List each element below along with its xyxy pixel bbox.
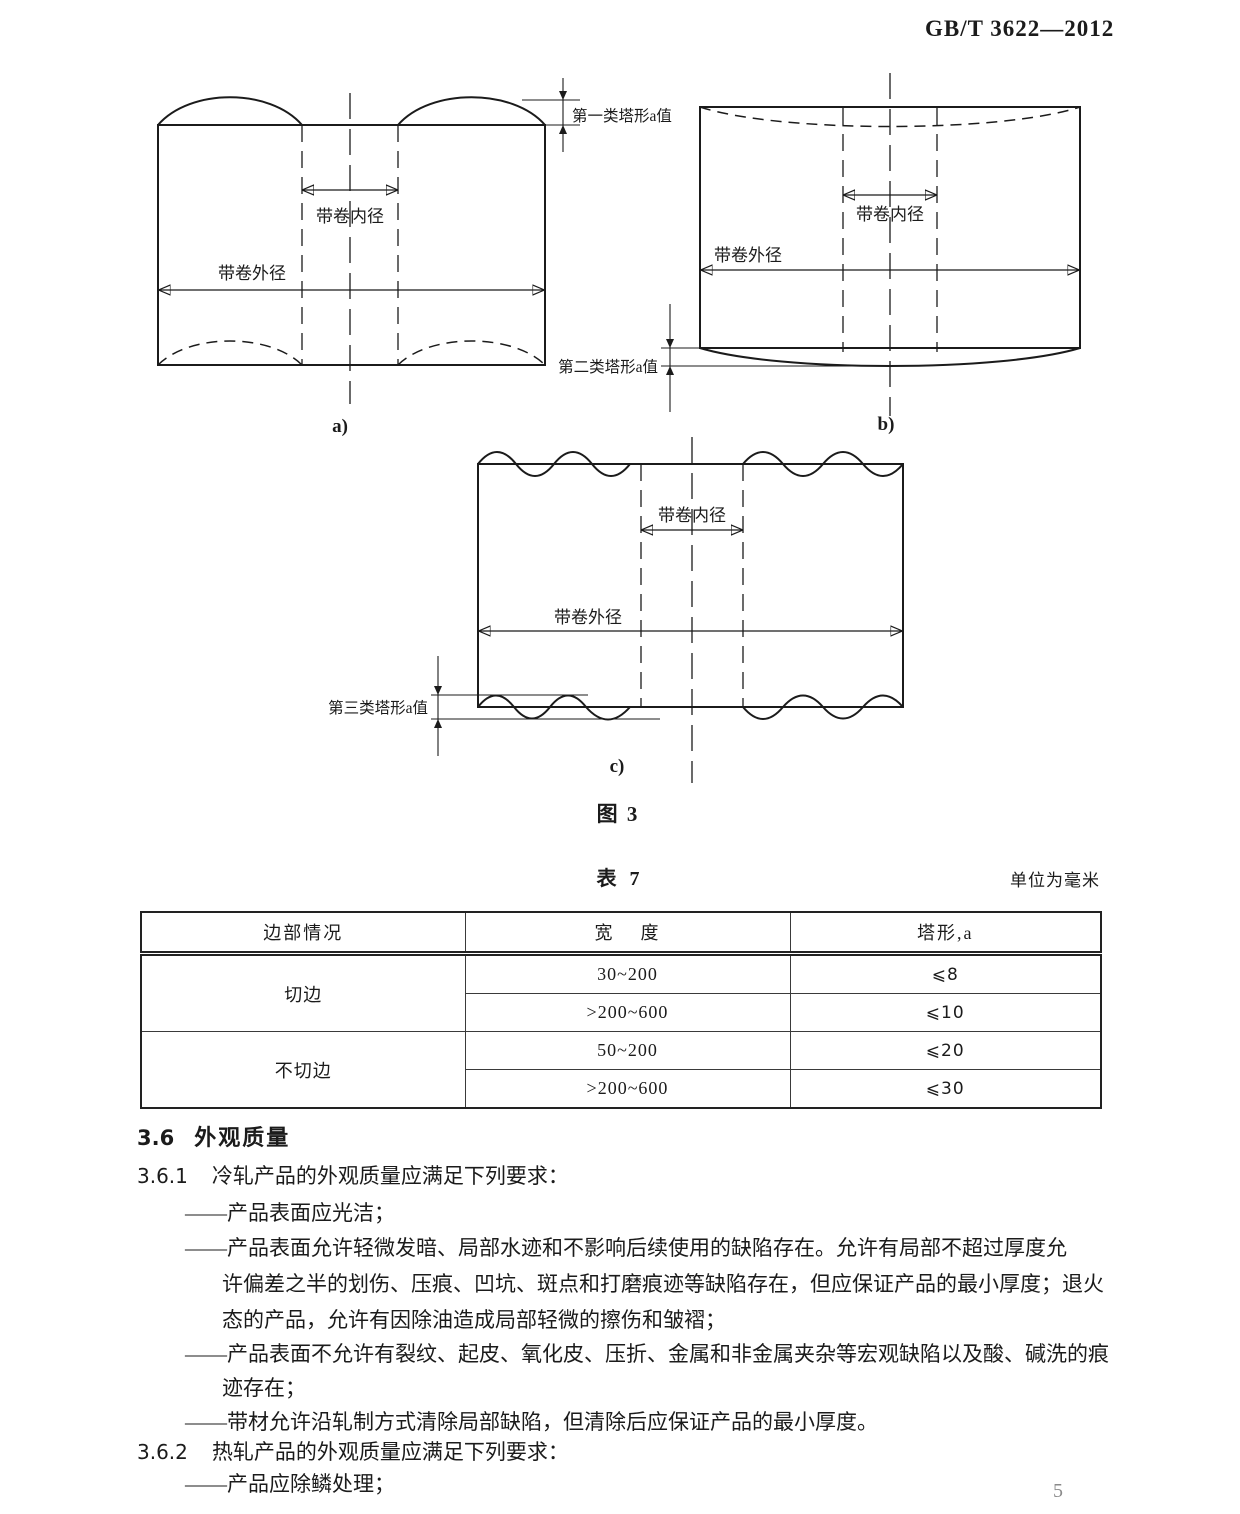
figure-3-caption: 图 3 — [597, 802, 640, 826]
bullet-surface-clean: ——产品表面应光洁； — [185, 1199, 395, 1227]
cell-edge-untrimmed: 不切边 — [141, 1032, 465, 1109]
inner-diameter-label-c: 带卷内径 — [658, 506, 726, 525]
cell-tower-value: ⩽20 — [790, 1032, 1101, 1070]
clause-number: 3.6.2 — [137, 1440, 188, 1464]
col-header-width: 宽 度 — [465, 912, 790, 954]
diagram-a-coil-side-view: 带卷内径 带卷外径 第一类塔形a值 a) — [158, 78, 672, 437]
bullet-descaling: ——产品应除鳞处理； — [185, 1470, 395, 1498]
bullet-no-cracks-line2: 迹存在； — [222, 1374, 306, 1402]
cell-tower-value: ⩽30 — [790, 1070, 1101, 1109]
clause-3-6-2: 3.6.2热轧产品的外观质量应满足下列要求： — [137, 1438, 569, 1466]
bullet-no-cracks-line1: ——产品表面不允许有裂纹、起皮、氧化皮、压折、金属和非金属夹杂等宏观缺陷以及酸、… — [185, 1340, 1109, 1368]
subfigure-c-caption: c) — [610, 756, 625, 777]
section-3-6-heading: 3.6外观质量 — [137, 1124, 290, 1152]
bullet-strip-removal: ——带材允许沿轧制方式清除局部缺陷，但清除后应保证产品的最小厚度。 — [185, 1408, 878, 1436]
tower-class3-label: 第三类塔形a值 — [328, 699, 428, 717]
clause-3-6-1: 3.6.1冷轧产品的外观质量应满足下列要求： — [137, 1162, 569, 1190]
cell-width: 50~200 — [465, 1032, 790, 1070]
table-row: 不切边 50~200 ⩽20 — [141, 1032, 1101, 1070]
inner-diameter-label-a: 带卷内径 — [316, 207, 384, 226]
outer-diameter-label-a: 带卷外径 — [218, 264, 286, 283]
bullet-surface-defects-line1: ——产品表面允许轻微发暗、局部水迹和不影响后续使用的缺陷存在。允许有局部不超过厚… — [185, 1234, 1067, 1262]
table-7-unit-note: 单位为毫米 — [140, 866, 1100, 891]
outer-diameter-label-c: 带卷外径 — [554, 608, 622, 627]
subfigure-a-caption: a) — [332, 416, 348, 437]
table-row: 切边 30~200 ⩽8 — [141, 954, 1101, 994]
cell-width: >200~600 — [465, 994, 790, 1032]
cell-tower-value: ⩽8 — [790, 954, 1101, 994]
inner-diameter-label-b: 带卷内径 — [856, 205, 924, 224]
table-7: 边部情况 宽 度 塔形,a 切边 30~200 ⩽8 >200~600 ⩽10 … — [140, 911, 1102, 1109]
table-header-row: 边部情况 宽 度 塔形,a — [141, 912, 1101, 954]
col-header-edge-condition: 边部情况 — [141, 912, 465, 954]
bullet-surface-defects-line2: 许偏差之半的划伤、压痕、凹坑、斑点和打磨痕迹等缺陷存在，但应保证产品的最小厚度；… — [222, 1270, 1104, 1298]
cell-width: >200~600 — [465, 1070, 790, 1109]
diagram-c-coil-side-view: 带卷内径 带卷外径 第三类塔形a值 c) — [328, 437, 903, 783]
tower-class1-label: 第一类塔形a值 — [572, 107, 672, 125]
document-page: GB/T 3622—2012 带卷内径 带卷外径 第一类塔形a值 a) — [0, 0, 1240, 1514]
section-number: 3.6 — [137, 1126, 174, 1150]
figure-3: 带卷内径 带卷外径 第一类塔形a值 a) 带卷内径 带卷外径 第二类塔形a值 b… — [0, 0, 1240, 860]
col-header-tower-a: 塔形,a — [790, 912, 1101, 954]
cell-width: 30~200 — [465, 954, 790, 994]
bullet-surface-defects-line3: 态的产品，允许有因除油造成局部轻微的擦伤和皱褶； — [222, 1306, 726, 1334]
subfigure-b-caption: b) — [878, 414, 895, 435]
section-title: 外观质量 — [194, 1125, 290, 1150]
clause-text: 热轧产品的外观质量应满足下列要求： — [212, 1440, 569, 1464]
outer-diameter-label-b: 带卷外径 — [714, 246, 782, 265]
clause-number: 3.6.1 — [137, 1164, 188, 1188]
page-number: 5 — [1053, 1480, 1063, 1503]
cell-tower-value: ⩽10 — [790, 994, 1101, 1032]
clause-text: 冷轧产品的外观质量应满足下列要求： — [212, 1164, 569, 1188]
tower-class2-label: 第二类塔形a值 — [558, 358, 658, 376]
cell-edge-trimmed: 切边 — [141, 954, 465, 1032]
diagram-b-coil-side-view: 带卷内径 带卷外径 第二类塔形a值 b) — [558, 73, 1080, 435]
